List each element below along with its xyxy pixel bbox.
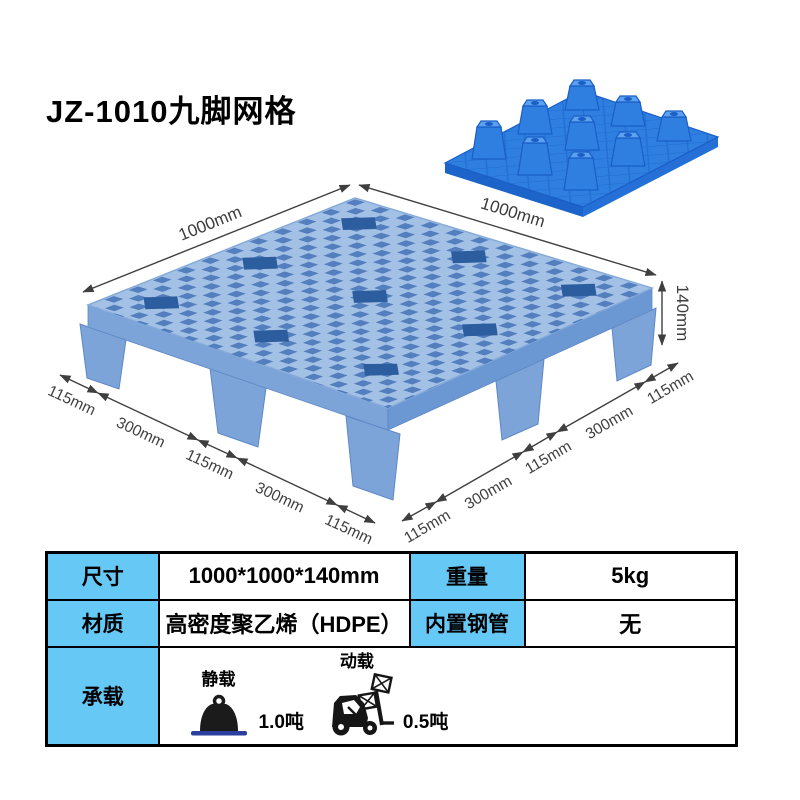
dim-label-right-2: 300mm — [462, 473, 515, 514]
spec-label-steel-pipe: 内置钢管 — [410, 600, 525, 647]
spec-value-size: 1000*1000*140mm — [159, 553, 410, 600]
spec-label-weight: 重量 — [410, 553, 525, 600]
dim-label-left-1: 115mm — [45, 382, 98, 419]
dim-label-right-1: 115mm — [401, 507, 453, 545]
weight-icon — [186, 691, 252, 737]
dim-label-right-5: 115mm — [644, 368, 696, 408]
dim-label-left-3: 115mm — [183, 446, 236, 483]
dim-label-top-left: 1000mm — [176, 202, 244, 244]
spec-table: 尺寸 1000*1000*140mm 重量 5kg 材质 高密度聚乙烯（HDPE… — [45, 551, 738, 747]
dynamic-load-label: 动载 — [340, 653, 374, 670]
spec-value-material: 高密度聚乙烯（HDPE） — [159, 600, 410, 647]
spec-label-material: 材质 — [47, 600, 159, 647]
table-row: 材质 高密度聚乙烯（HDPE） 内置钢管 无 — [47, 600, 737, 647]
dim-label-height: 140mm — [673, 285, 692, 342]
spec-value-load: 静载 1.0吨 动载 — [159, 647, 737, 746]
dim-label-left-2: 300mm — [114, 414, 168, 451]
dynamic-load-group: 动载 — [318, 653, 448, 737]
dim-label-left-4: 300mm — [253, 479, 307, 516]
static-load-label: 静载 — [202, 671, 236, 688]
spec-label-size: 尺寸 — [47, 553, 159, 600]
spec-value-weight: 5kg — [525, 553, 737, 600]
dynamic-load-value: 0.5吨 — [403, 713, 448, 732]
static-load-group: 静载 1.0吨 — [186, 671, 304, 737]
table-row: 承载 静载 1.0吨 动载 — [47, 647, 737, 746]
spec-label-load: 承载 — [47, 647, 159, 746]
static-load-value: 1.0吨 — [259, 713, 304, 732]
pallet-diagram: 1000mm 1000mm 140mm 115mm 300mm 115mm 30… — [30, 75, 770, 545]
dim-label-right-4: 300mm — [583, 403, 636, 444]
dim-label-left-5: 115mm — [322, 511, 375, 545]
spec-value-steel-pipe: 无 — [525, 600, 737, 647]
table-row: 尺寸 1000*1000*140mm 重量 5kg — [47, 553, 737, 600]
dim-label-right-3: 115mm — [522, 438, 574, 478]
forklift-icon — [318, 673, 396, 737]
